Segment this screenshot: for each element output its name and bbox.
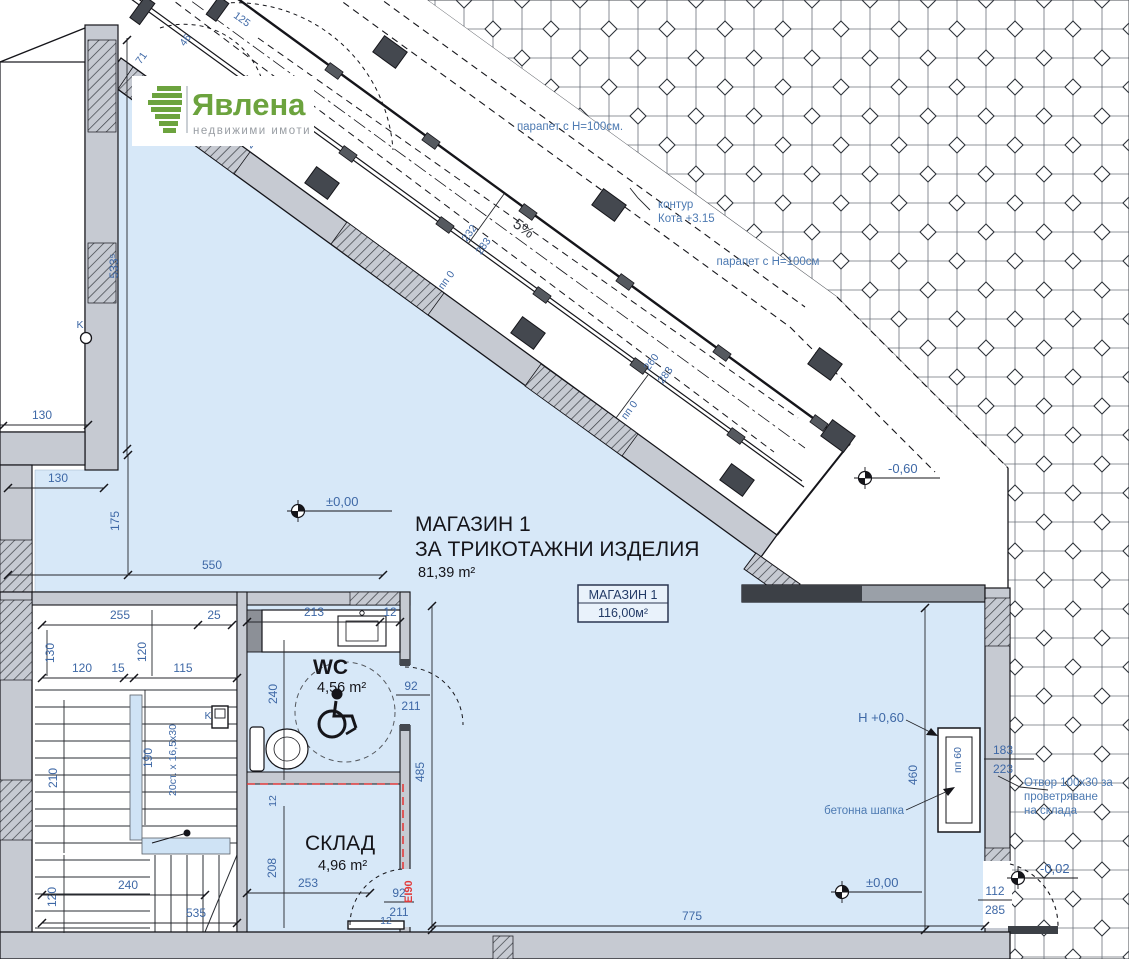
fire-rating-label: EI90 xyxy=(403,880,415,903)
svg-text:253: 253 xyxy=(298,876,318,890)
svg-text:120: 120 xyxy=(72,661,92,675)
svg-text:12: 12 xyxy=(380,915,392,927)
svg-text:115: 115 xyxy=(173,661,192,675)
svg-text:211: 211 xyxy=(401,699,420,713)
svg-text:285: 285 xyxy=(985,903,1005,917)
svg-text:223: 223 xyxy=(993,762,1013,776)
pillar xyxy=(938,728,980,832)
level-pm000-a: ±0,00 xyxy=(326,494,358,509)
svg-text:130: 130 xyxy=(43,643,57,663)
shop-title: МАГАЗИН 1 xyxy=(415,513,531,536)
svg-text:535: 535 xyxy=(186,906,206,920)
level-m002: -0,02 xyxy=(1040,861,1070,876)
exterior-door-leaf xyxy=(1008,926,1058,934)
svg-text:Кота +3.15: Кота +3.15 xyxy=(658,213,715,225)
svg-text:255: 255 xyxy=(110,608,130,622)
svg-text:120: 120 xyxy=(135,642,149,662)
level-m060: -0,60 xyxy=(888,461,918,476)
svg-text:130: 130 xyxy=(32,408,52,422)
svg-text:92: 92 xyxy=(404,679,418,693)
toilet xyxy=(250,727,264,771)
shop-area: 81,39 m² xyxy=(418,565,475,581)
storage-door-leaf xyxy=(348,921,404,929)
wc-area: 4,56 m² xyxy=(317,680,366,696)
vent-note: Отвор 100x30 за xyxy=(1024,777,1113,789)
floor-plan-page: 533⁵ 130 130 175 550 125 71 46 280 232 2… xyxy=(0,0,1129,959)
logo: Явлена недвижими имоти xyxy=(132,76,314,146)
sink xyxy=(338,616,386,646)
svg-text:12: 12 xyxy=(383,605,397,619)
svg-text:208: 208 xyxy=(265,858,279,878)
shop-box-title: МАГАЗИН 1 xyxy=(589,588,658,602)
storage-title: СКЛАД xyxy=(305,832,375,855)
svg-text:190: 190 xyxy=(141,748,155,768)
cap-note: бетонна шапка xyxy=(824,805,904,817)
svg-text:130: 130 xyxy=(48,471,68,485)
adjacent-room xyxy=(0,62,85,432)
wc-title: WC xyxy=(313,656,348,679)
level-pm000-b: ±0,00 xyxy=(866,875,898,890)
floor-plan-drawing: 533⁵ 130 130 175 550 125 71 46 280 232 2… xyxy=(0,0,1129,959)
pp60-label: пп 60 xyxy=(952,747,964,773)
svg-text:240: 240 xyxy=(266,684,280,704)
svg-text:проветряване: проветряване xyxy=(1024,791,1098,803)
svg-text:12: 12 xyxy=(267,795,279,807)
svg-text:175: 175 xyxy=(108,511,122,531)
svg-text:240: 240 xyxy=(118,878,138,892)
svg-text:25: 25 xyxy=(207,608,221,622)
svg-text:120: 120 xyxy=(45,887,59,907)
parapet-note-2: парапет с Н=100см xyxy=(717,256,820,268)
svg-text:775: 775 xyxy=(682,909,702,923)
svg-text:460: 460 xyxy=(906,765,920,785)
dim: 533⁵ xyxy=(107,253,121,278)
logo-text: Явлена xyxy=(192,87,306,122)
h-level-note: Н +0,60 xyxy=(858,710,904,725)
svg-text:15: 15 xyxy=(111,661,125,675)
svg-text:ЗА ТРИКОТАЖНИ ИЗДЕЛИЯ: ЗА ТРИКОТАЖНИ ИЗДЕЛИЯ xyxy=(415,538,699,561)
storage-area: 4,96 m² xyxy=(318,858,367,874)
svg-text:485: 485 xyxy=(413,762,427,782)
k-label-stairs: K xyxy=(204,710,211,722)
svg-text:183: 183 xyxy=(993,743,1013,757)
k-label-left: K xyxy=(76,319,83,331)
shop-box-area: 116,00м² xyxy=(598,606,648,620)
svg-text:213: 213 xyxy=(304,605,324,619)
svg-text:210: 210 xyxy=(46,768,60,788)
logo-tagline: недвижими имоти xyxy=(193,125,311,137)
svg-text:на склада: на склада xyxy=(1024,805,1078,817)
rooms-top-wall xyxy=(0,592,410,605)
svg-text:112: 112 xyxy=(985,884,1004,898)
parapet-note-1: парапет с Н=100см. xyxy=(517,121,623,133)
stairs-note: 20ст. x 16,5x30 xyxy=(167,724,179,796)
svg-text:550: 550 xyxy=(202,558,222,572)
contour-note: контур xyxy=(658,199,693,211)
svg-text:211: 211 xyxy=(389,905,408,919)
